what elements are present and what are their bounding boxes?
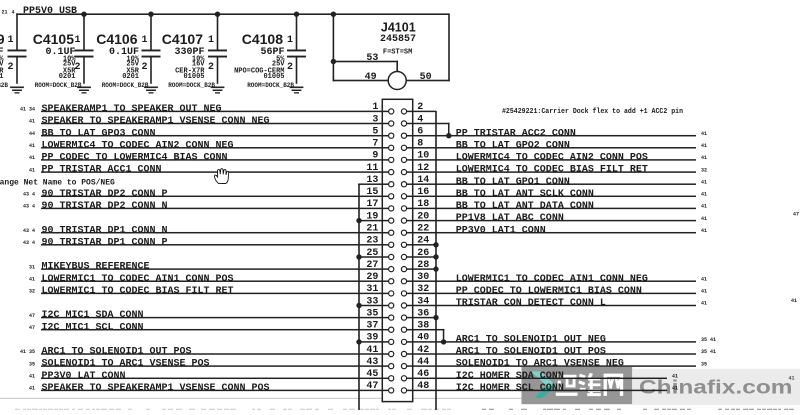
svg-text:PP5V0_USB: PP5V0_USB: [23, 6, 77, 17]
svg-text:SPEAKER_TO_SPEAKERAMP1_VSENSE_: SPEAKER_TO_SPEAKERAMP1_VSENSE_CONN_NEG: [42, 116, 270, 127]
svg-text:41: 41: [701, 216, 707, 222]
svg-text:Chinafix.com: Chinafix.com: [639, 378, 793, 399]
svg-text:90_TRISTAR_DP2_CONN_N: 90_TRISTAR_DP2_CONN_N: [42, 201, 168, 212]
svg-text:ROOM=DOCK_B2B: ROOM=DOCK_B2B: [102, 82, 149, 89]
svg-text:LOWERMIC4_TO_CODEC_BIAS_FILT_R: LOWERMIC4_TO_CODEC_BIAS_FILT_RET: [456, 165, 648, 176]
svg-text:I2C_MIC1_SCL_CONN: I2C_MIC1_SCL_CONN: [42, 322, 144, 333]
svg-text:41: 41: [29, 167, 35, 173]
svg-text:LOWERMIC1_TO_CODEC_BIAS_FILT_R: LOWERMIC1_TO_CODEC_BIAS_FILT_RET: [42, 286, 234, 297]
svg-text:41: 41: [701, 289, 707, 295]
svg-text:43 4: 43 4: [23, 228, 35, 234]
svg-text:SPEAKER_TO_SPEAKERAMP1_VSENSE_: SPEAKER_TO_SPEAKERAMP1_VSENSE_CONN_POS: [42, 383, 270, 394]
svg-text:2: 2: [141, 62, 147, 73]
svg-text:47: 47: [29, 325, 35, 331]
svg-text:I2C_MIC1_SDA_CONN: I2C_MIC1_SDA_CONN: [42, 310, 144, 321]
svg-text:ROOM=DOCK_B2B: ROOM=DOCK_B2B: [247, 82, 294, 89]
svg-text:49: 49: [365, 72, 377, 83]
svg-text:41: 41: [672, 374, 678, 380]
svg-text:2: 2: [208, 62, 214, 73]
svg-text:LOWERMIC1_TO_CODEC_AIN1_CONN_N: LOWERMIC1_TO_CODEC_AIN1_CONN_NEG: [456, 274, 648, 285]
svg-text:2: 2: [287, 62, 293, 73]
svg-text:0201: 0201: [59, 73, 76, 81]
svg-text:47: 47: [793, 212, 799, 218]
svg-text:41: 41: [701, 276, 707, 282]
svg-text:41: 41: [701, 204, 707, 210]
svg-text:PP3V0_LAT1_CONN: PP3V0_LAT1_CONN: [456, 225, 546, 236]
svg-text:SPEAKERAMP1_TO_SPEAKER_OUT_NEG: SPEAKERAMP1_TO_SPEAKER_OUT_NEG: [42, 104, 222, 115]
svg-text:LOWERMIC1_TO_CODEC_AIN1_CONN_P: LOWERMIC1_TO_CODEC_AIN1_CONN_POS: [42, 274, 234, 285]
svg-text:SOLENOID1_TO_ARC1_VSENSE_POS: SOLENOID1_TO_ARC1_VSENSE_POS: [42, 359, 210, 370]
svg-text:1: 1: [208, 35, 214, 46]
svg-text:C4107: C4107: [162, 31, 203, 47]
svg-text:I2C_HOMER_SDA_CONN: I2C_HOMER_SDA_CONN: [456, 371, 564, 382]
svg-text:50: 50: [420, 72, 432, 83]
svg-text:TRISTAR_CON_DETECT_CONN_L: TRISTAR_CON_DETECT_CONN_L: [456, 298, 606, 309]
svg-text:41: 41: [29, 119, 35, 125]
svg-text:2: 2: [74, 62, 80, 73]
svg-text:32: 32: [29, 289, 35, 295]
svg-text:01005: 01005: [263, 73, 284, 81]
svg-text:35: 35: [29, 361, 35, 367]
svg-text:41 35: 41 35: [20, 349, 35, 355]
svg-text:C4109: C4109: [0, 31, 5, 47]
svg-text:90_TRISTAR_DP1_CONN_P: 90_TRISTAR_DP1_CONN_P: [42, 237, 168, 248]
svg-text:C4108: C4108: [242, 31, 283, 47]
svg-text:BB_TO_LAT_ANT_SCLK_CONN: BB_TO_LAT_ANT_SCLK_CONN: [456, 189, 594, 200]
svg-text:41: 41: [789, 375, 795, 381]
svg-text:Change Net Name to POS/NEG: Change Net Name to POS/NEG: [0, 178, 115, 187]
svg-text:BB_TO_LAT_GPO2_CONN: BB_TO_LAT_GPO2_CONN: [456, 140, 570, 151]
svg-text:1: 1: [74, 35, 80, 46]
svg-text:90_TRISTAR_DP1_CONN_N: 90_TRISTAR_DP1_CONN_N: [42, 225, 168, 236]
svg-text:41: 41: [29, 276, 35, 282]
svg-text:0201: 0201: [122, 73, 139, 81]
svg-text:LOWERMIC4_TO_CODEC_AIN2_CONN_P: LOWERMIC4_TO_CODEC_AIN2_CONN_POS: [456, 153, 648, 164]
svg-text:SOLENOID1_TO_ARC1_VSENSE_NEG: SOLENOID1_TO_ARC1_VSENSE_NEG: [456, 359, 624, 370]
svg-text:41: 41: [29, 374, 35, 380]
svg-text:41: 41: [791, 298, 797, 304]
svg-text:53: 53: [366, 53, 378, 64]
svg-text:41: 41: [672, 386, 678, 392]
svg-text:ROOM=DOCK_B2B: ROOM=DOCK_B2B: [168, 82, 215, 89]
svg-text:PP_TRISTAR_ACC1_CONN: PP_TRISTAR_ACC1_CONN: [42, 165, 162, 176]
svg-text:PP1V8_LAT_ABC_CONN: PP1V8_LAT_ABC_CONN: [456, 213, 564, 224]
svg-text:1: 1: [7, 35, 13, 46]
svg-text:41: 41: [701, 179, 707, 185]
svg-text:2: 2: [7, 62, 13, 73]
svg-text:I2C_HOMER_SCL_CONN: I2C_HOMER_SCL_CONN: [456, 383, 564, 394]
svg-text:PP3V0_LAT_CONN: PP3V0_LAT_CONN: [42, 371, 126, 382]
svg-text:ARC1_TO_SOLENOID1_OUT_POS: ARC1_TO_SOLENOID1_OUT_POS: [42, 347, 192, 358]
svg-text:35: 35: [701, 361, 707, 367]
svg-text:41: 41: [701, 143, 707, 149]
svg-text:41: 41: [701, 131, 707, 137]
svg-text:PP_CODEC_TO_LOWERMIC4_BIAS_CON: PP_CODEC_TO_LOWERMIC4_BIAS_CONN: [42, 153, 228, 164]
svg-text:41 34: 41 34: [20, 107, 35, 113]
svg-text:1: 1: [141, 35, 147, 46]
svg-text:C4106: C4106: [96, 31, 137, 47]
svg-text:41: 41: [701, 301, 707, 307]
svg-text:35 41: 35 41: [701, 337, 716, 343]
svg-text:43 4: 43 4: [23, 240, 35, 246]
svg-text:41: 41: [29, 386, 35, 392]
svg-text:MIKEYBUS_REFERENCE: MIKEYBUS_REFERENCE: [42, 262, 150, 273]
svg-text:ARC1_TO_SOLENOID1_OUT_NEG: ARC1_TO_SOLENOID1_OUT_NEG: [456, 335, 606, 346]
svg-text:J4101: J4101: [381, 21, 416, 35]
svg-text:F=ST=SM: F=ST=SM: [383, 48, 412, 56]
svg-text:ARC1_TO_SOLENOID1_OUT_POS: ARC1_TO_SOLENOID1_OUT_POS: [456, 347, 606, 358]
svg-text:4: 4: [12, 10, 15, 16]
svg-text:PP_TRISTAR_ACC2_CONN: PP_TRISTAR_ACC2_CONN: [456, 128, 576, 139]
svg-text:BB_TO_LAT_GPO3_CONN: BB_TO_LAT_GPO3_CONN: [42, 128, 156, 139]
svg-text:35 41: 35 41: [701, 349, 716, 355]
svg-text:31: 31: [29, 264, 35, 270]
svg-text:1: 1: [287, 35, 293, 46]
svg-text:01005: 01005: [183, 73, 204, 81]
svg-text:41: 41: [701, 155, 707, 161]
svg-text:90_TRISTAR_DP2_CONN_P: 90_TRISTAR_DP2_CONN_P: [42, 189, 168, 200]
svg-text:47: 47: [29, 313, 35, 319]
svg-text:#25429221:Carrier Dock flex to: #25429221:Carrier Dock flex to add +1 AC…: [502, 108, 683, 116]
svg-text:C4105: C4105: [33, 31, 74, 47]
svg-text:LOWERMIC4_TO_CODEC_AIN2_CONN_N: LOWERMIC4_TO_CODEC_AIN2_CONN_NEG: [42, 140, 234, 151]
svg-text:43 4: 43 4: [23, 204, 35, 210]
svg-text:21: 21: [2, 10, 8, 16]
svg-text:ROOM=DOCK_B2B: ROOM=DOCK_B2B: [35, 82, 82, 89]
svg-text:0201: 0201: [0, 73, 4, 81]
svg-text:BB_TO_LAT_GPO1_CONN: BB_TO_LAT_GPO1_CONN: [456, 177, 570, 188]
svg-text:PP_CODEC_TO_LOWERMIC1_BIAS_CON: PP_CODEC_TO_LOWERMIC1_BIAS_CONN: [456, 286, 642, 297]
svg-text:43 4: 43 4: [23, 192, 35, 198]
svg-text:41: 41: [29, 143, 35, 149]
svg-text:41: 41: [701, 192, 707, 198]
svg-text:41: 41: [701, 228, 707, 234]
svg-text:245857: 245857: [380, 34, 416, 45]
svg-text:BB_TO_LAT_ANT_DATA_CONN: BB_TO_LAT_ANT_DATA_CONN: [456, 201, 594, 212]
svg-text:41: 41: [29, 155, 35, 161]
svg-text:ROOM=DOCK_B2B: ROOM=DOCK_B2B: [0, 82, 8, 89]
svg-text:44: 44: [29, 131, 35, 137]
svg-text:32: 32: [701, 167, 707, 173]
